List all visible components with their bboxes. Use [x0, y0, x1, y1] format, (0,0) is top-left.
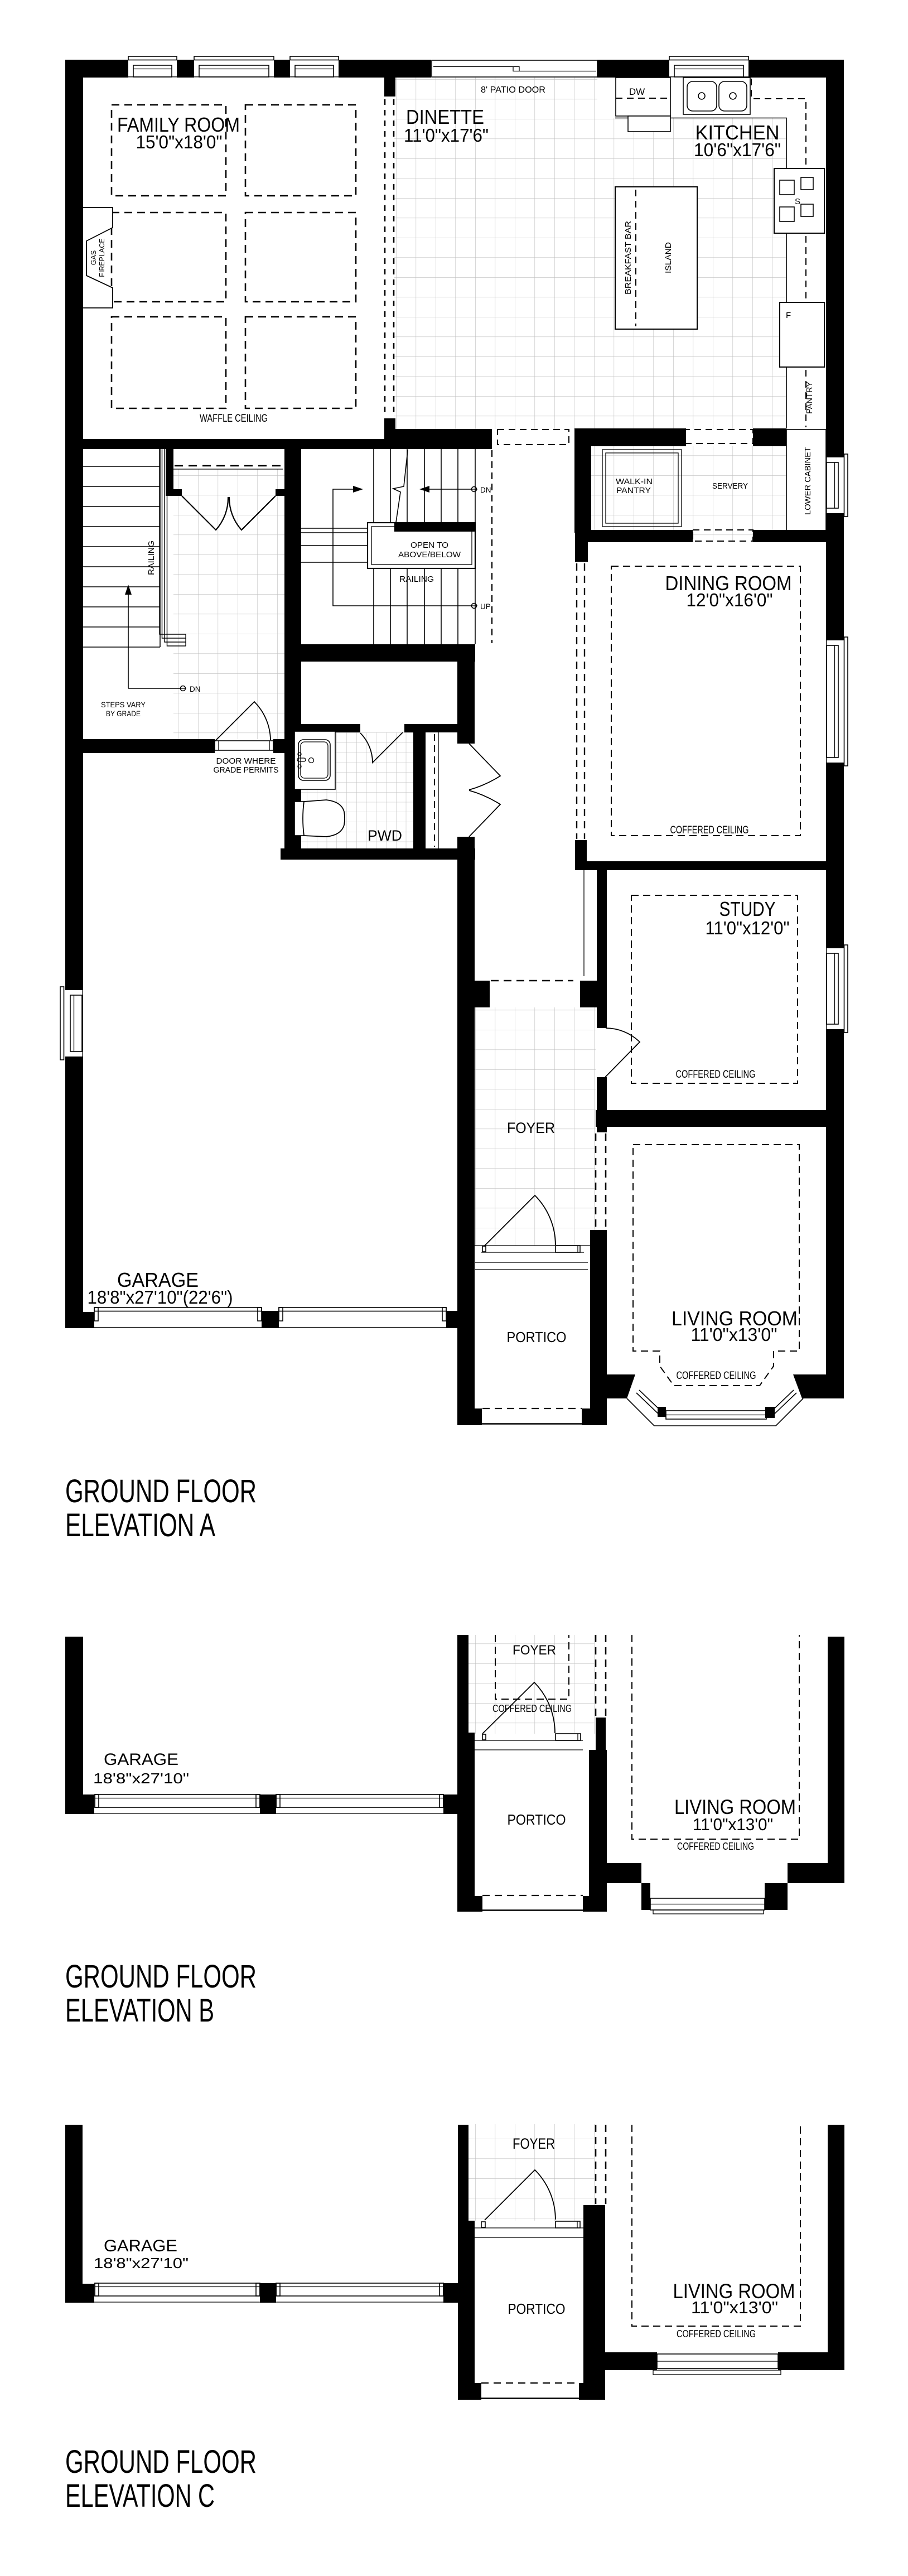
svg-text:18'8"x27'10": 18'8"x27'10" — [94, 2255, 189, 2271]
svg-text:COFFERED CEILING: COFFERED CEILING — [677, 1841, 754, 1852]
svg-text:FIREPLACE: FIREPLACE — [98, 238, 106, 277]
svg-text:F: F — [786, 311, 791, 320]
svg-text:OPEN TO: OPEN TO — [410, 541, 448, 550]
svg-text:11'0"x13'0": 11'0"x13'0" — [691, 2298, 778, 2317]
svg-text:PANTRY: PANTRY — [616, 486, 651, 495]
svg-text:BY GRADE: BY GRADE — [106, 709, 141, 718]
svg-text:GRADE PERMITS: GRADE PERMITS — [214, 765, 279, 775]
svg-text:GARAGE: GARAGE — [104, 2237, 177, 2255]
svg-text:FOYER: FOYER — [513, 2135, 555, 2152]
svg-text:SERVERY: SERVERY — [712, 481, 748, 491]
svg-text:COFFERED CEILING: COFFERED CEILING — [676, 1069, 756, 1080]
svg-text:12'0"x16'0": 12'0"x16'0" — [687, 590, 773, 610]
svg-text:GROUND FLOOR: GROUND FLOOR — [65, 1958, 257, 1995]
svg-text:ELEVATION A: ELEVATION A — [65, 1507, 215, 1543]
svg-text:ISLAND: ISLAND — [664, 242, 673, 273]
svg-text:GROUND FLOOR: GROUND FLOOR — [65, 2444, 257, 2480]
svg-text:FOYER: FOYER — [507, 1120, 555, 1136]
svg-text:COFFERED CEILING: COFFERED CEILING — [677, 2328, 756, 2339]
svg-text:11'0"x12'0": 11'0"x12'0" — [706, 918, 790, 938]
svg-text:11'0"x17'6": 11'0"x17'6" — [404, 125, 489, 146]
svg-text:FOYER: FOYER — [513, 1643, 556, 1658]
svg-text:RAILING: RAILING — [147, 541, 156, 575]
svg-text:PANTRY: PANTRY — [805, 382, 814, 414]
svg-text:15'0"x18'0": 15'0"x18'0" — [136, 132, 223, 152]
svg-text:RAILING: RAILING — [399, 575, 434, 584]
svg-text:PWD: PWD — [368, 827, 402, 844]
svg-text:COFFERED CEILING: COFFERED CEILING — [670, 824, 749, 836]
svg-text:STUDY: STUDY — [719, 898, 776, 920]
svg-text:STEPS VARY: STEPS VARY — [101, 700, 146, 709]
svg-text:PORTICO: PORTICO — [508, 2300, 566, 2317]
svg-text:WAFFLE CEILING: WAFFLE CEILING — [200, 413, 268, 424]
svg-text:GROUND FLOOR: GROUND FLOOR — [65, 1473, 257, 1509]
svg-text:11'0"x13'0": 11'0"x13'0" — [691, 1324, 777, 1345]
svg-text:DW: DW — [629, 86, 645, 97]
svg-text:LOWER CABINET: LOWER CABINET — [803, 447, 813, 515]
svg-text:GAS: GAS — [90, 250, 98, 265]
svg-text:S: S — [795, 197, 800, 206]
svg-text:PORTICO: PORTICO — [507, 1329, 567, 1345]
svg-text:DOOR WHERE: DOOR WHERE — [216, 756, 276, 766]
svg-text:ABOVE/BELOW: ABOVE/BELOW — [398, 550, 461, 559]
svg-text:UP: UP — [480, 602, 491, 611]
svg-text:ELEVATION B: ELEVATION B — [65, 1993, 214, 2029]
svg-text:ELEVATION C: ELEVATION C — [65, 2478, 215, 2514]
svg-text:DN: DN — [480, 486, 491, 494]
svg-text:WALK-IN: WALK-IN — [616, 477, 653, 486]
svg-text:18'8"x27'10"(22'6"): 18'8"x27'10"(22'6") — [88, 1287, 233, 1308]
svg-text:PORTICO: PORTICO — [508, 1811, 566, 1828]
svg-text:COFFERED CEILING: COFFERED CEILING — [677, 1370, 756, 1382]
svg-text:8' PATIO DOOR: 8' PATIO DOOR — [481, 85, 545, 95]
svg-text:18'8"x27'10": 18'8"x27'10" — [93, 1770, 189, 1787]
svg-text:BREAKFAST BAR: BREAKFAST BAR — [624, 221, 633, 295]
svg-text:DN: DN — [190, 685, 201, 693]
svg-text:11'0"x13'0": 11'0"x13'0" — [693, 1815, 773, 1834]
svg-text:10'6"x17'6": 10'6"x17'6" — [694, 139, 781, 160]
svg-text:GARAGE: GARAGE — [104, 1750, 178, 1769]
